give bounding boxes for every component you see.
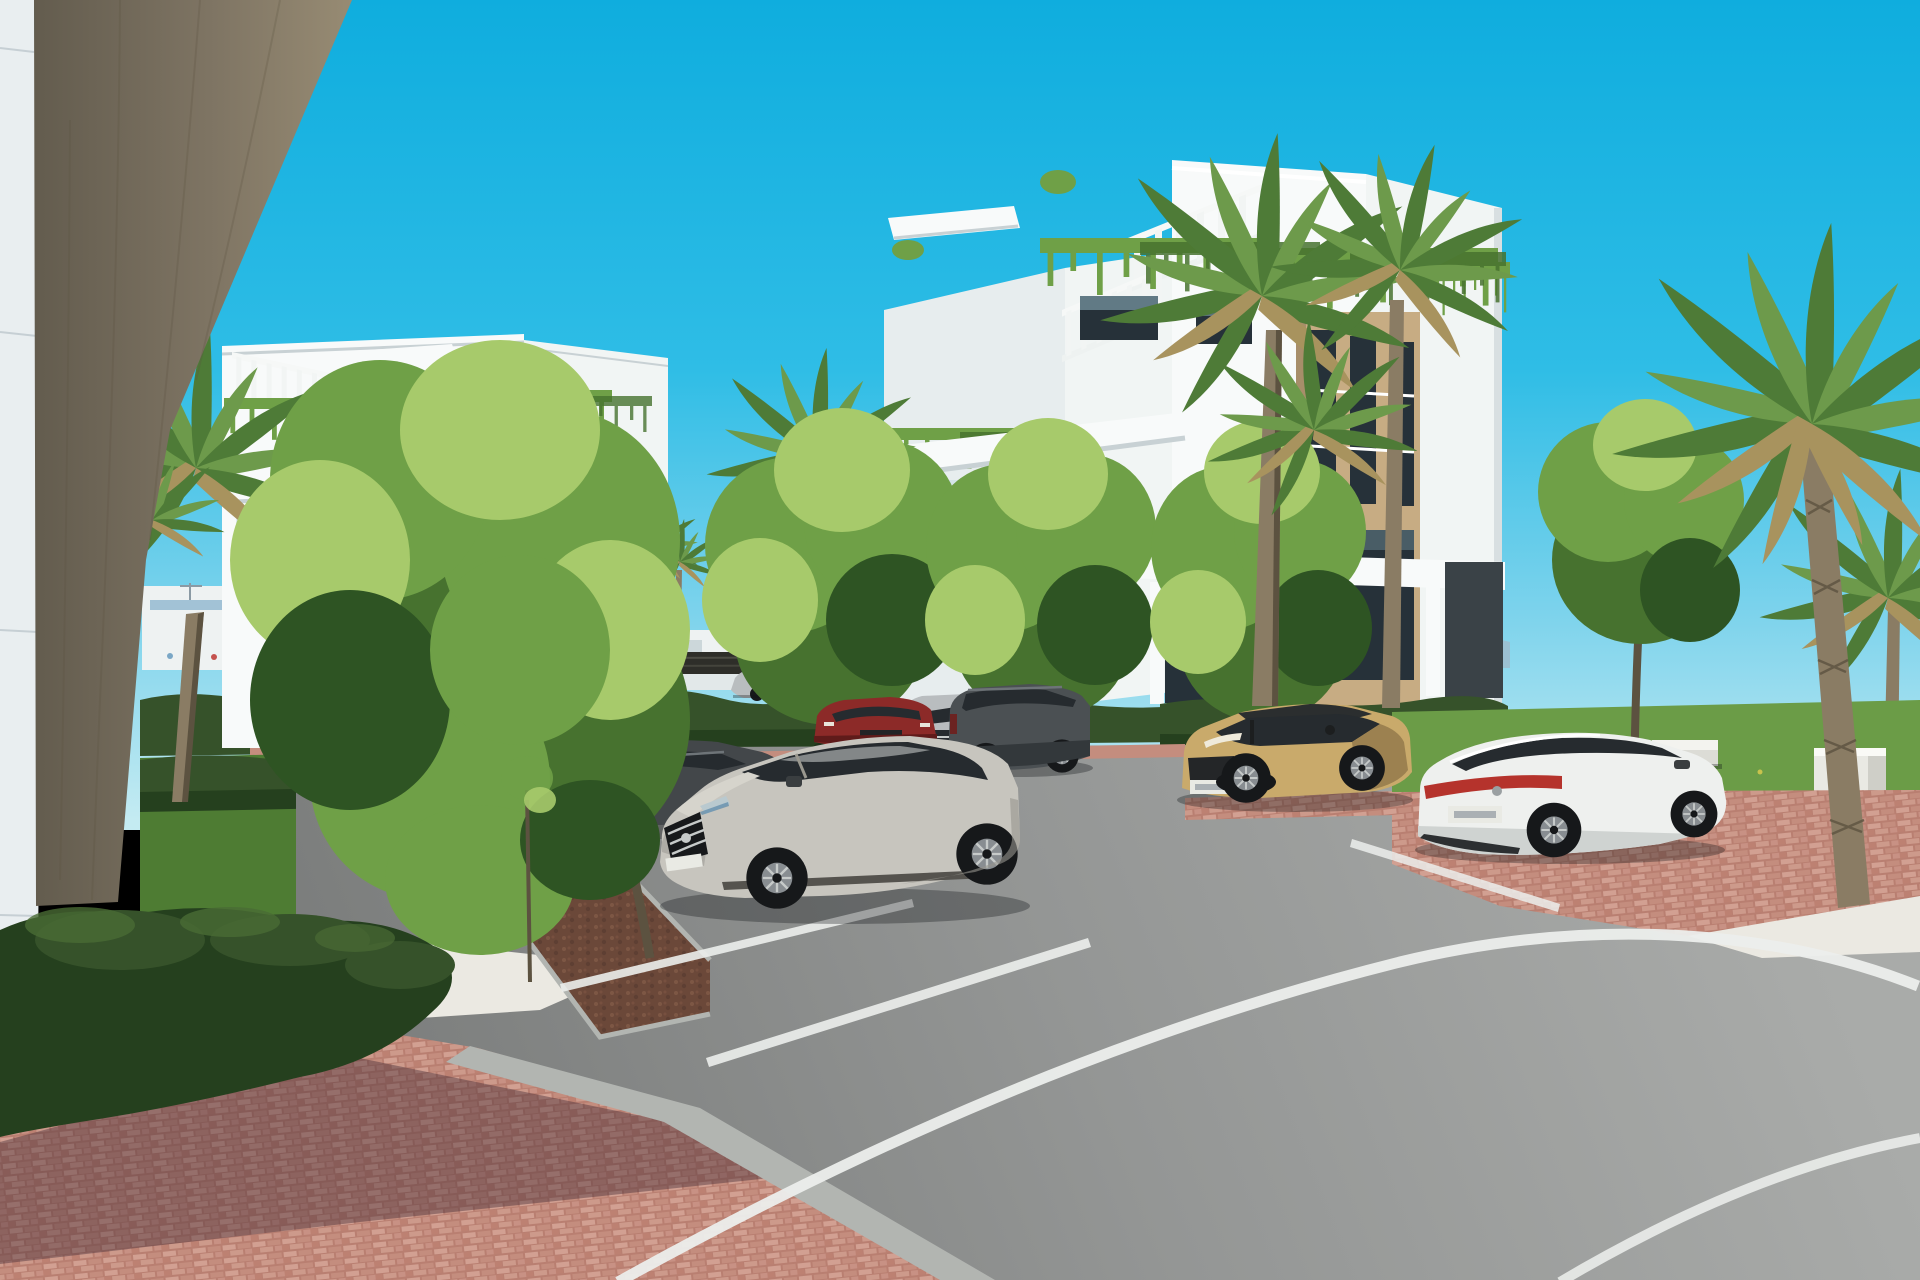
- render-image: [0, 0, 1920, 1280]
- white-sedan: [1415, 733, 1726, 864]
- architectural-render: [0, 0, 1920, 1280]
